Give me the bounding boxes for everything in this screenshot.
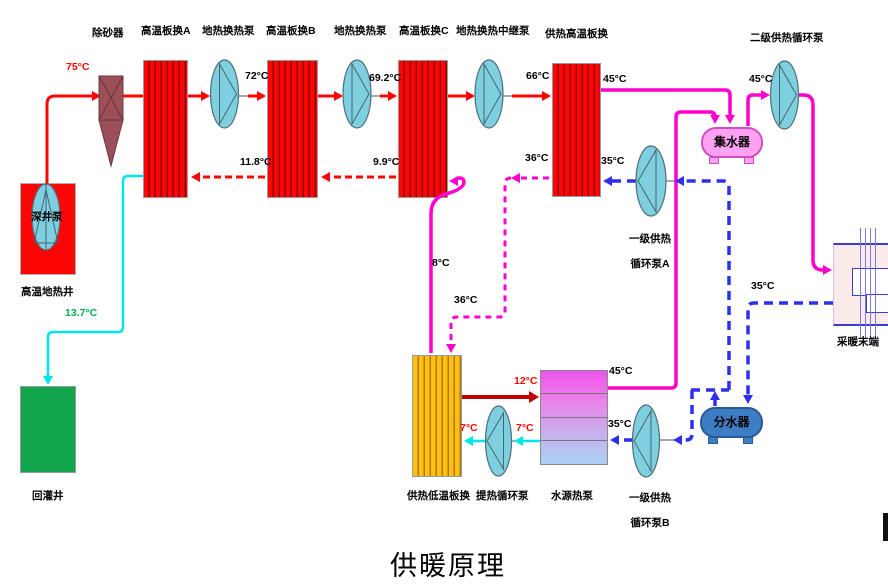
hx-supply-low-label: 供热低温板换 [407,490,470,503]
temp-hx-c-out-low: 8°C [432,257,450,269]
heating-terminal-label: 采暖末端 [837,336,879,349]
temp-low-hx-supply: 12°C [514,375,537,387]
diagram-title: 供暖原理 [390,544,506,583]
hx-supply-high-label: 供热高温板换 [545,28,608,41]
temp-to-low-hx: 36°C [454,294,477,306]
deep-well-pump-label: 深井泵 [31,211,63,224]
geothermal-well-label: 高温地热井 [21,286,74,299]
lift-pump-label: 提热循环泵 [476,490,529,503]
hx-a-label: 高温板换A [141,25,191,38]
heating-principle-diagram: 除砂器 高温板换A 地热换热泵 高温板换B 地热换热泵 高温板换C 地热换热中继… [0,0,888,586]
collector-label: 集水器 [701,127,763,158]
temp-well-out: 75°C [66,61,89,73]
temp-low-hx-return-1: 7°C [460,422,478,434]
temp-after-hx-a: 72°C [245,70,268,82]
primary-pump-a-label-line1: 一级供热 [620,227,680,252]
reinjection-well-label: 回灌井 [32,490,64,503]
temp-terminal-return: 35°C [751,280,774,292]
primary-pump-a-label-line2: 循环泵A [620,252,680,277]
temp-low-hx-return-2: 7°C [516,422,534,434]
temp-hx-high-bypass: 36°C [525,152,548,164]
primary-pump-b-label-line2: 循环泵B [620,511,680,536]
temp-after-hx-b: 69.2°C [369,72,401,84]
temp-return-to-hx-a: 11.8°C [240,156,272,168]
water-source-heat-pump-label: 水源热泵 [551,490,593,503]
geo-pump-2-label: 地热换热泵 [334,25,387,38]
temp-after-hx-c: 66°C [526,70,549,82]
relay-pump-label: 地热换热中继泵 [456,25,530,38]
secondary-pump-label: 二级供热循环泵 [750,32,824,45]
sand-remover-label: 除砂器 [92,27,124,40]
temp-wshp-return: 35°C [608,418,631,430]
temp-hx-high-return: 35°C [601,155,624,167]
temp-hx-high-out-supply: 45°C [603,73,626,85]
temp-return-to-hx-b: 9.9°C [373,156,399,168]
temp-reinjection: 13.7°C [65,307,97,319]
temp-collector-to-pump: 45°C [749,73,772,85]
labels-layer: 除砂器 高温板换A 地热换热泵 高温板换B 地热换热泵 高温板换C 地热换热中继… [0,0,888,586]
temp-wshp-supply: 45°C [609,365,632,377]
hx-c-label: 高温板换C [399,25,449,38]
primary-pump-a-label: 一级供热 循环泵A [620,227,680,277]
primary-pump-b-label-line1: 一级供热 [620,486,680,511]
primary-pump-b-label: 一级供热 循环泵B [620,486,680,536]
hx-b-label: 高温板换B [266,25,316,38]
geo-pump-1-label: 地热换热泵 [202,25,255,38]
distributor-label: 分水器 [700,407,763,438]
